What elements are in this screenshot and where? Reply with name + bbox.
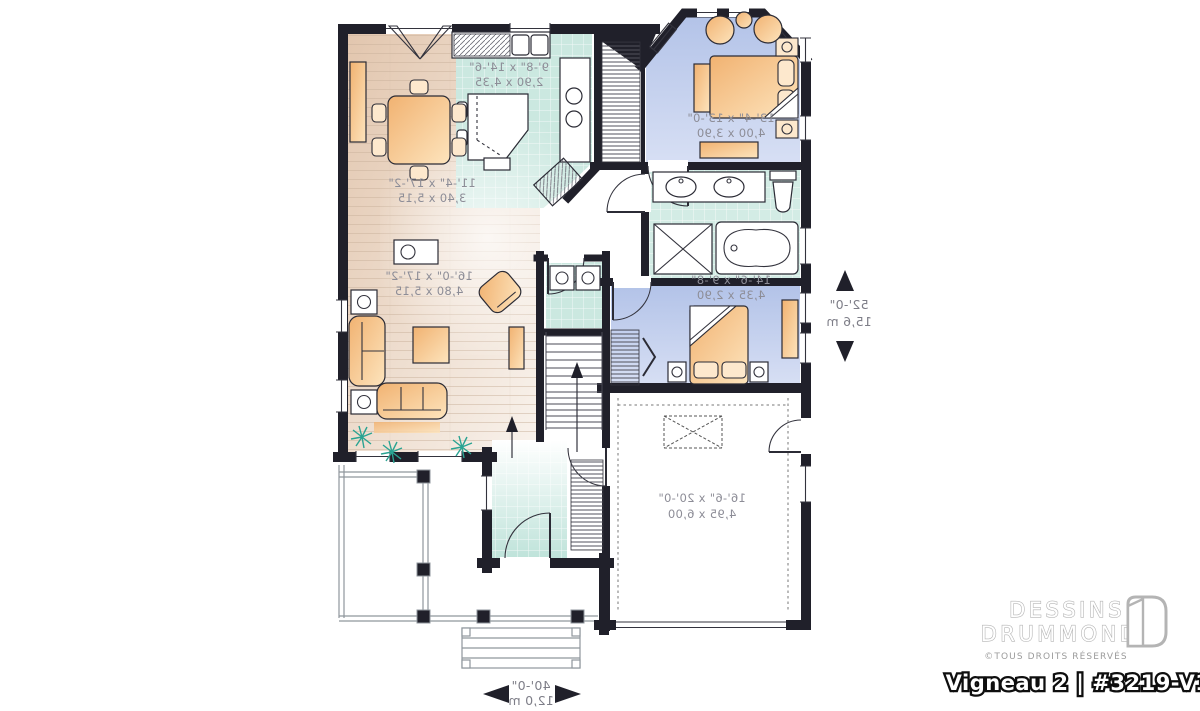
plan-model-number: Vigneau 2 | #3219-V1 [946, 671, 1200, 696]
pillow [778, 60, 794, 86]
window-garage [800, 466, 811, 502]
bedroom2-size-metric: 4,35 x 2,90 [697, 288, 766, 302]
depth-metric: 15,6 m [826, 314, 872, 329]
garage-service-door [769, 420, 801, 452]
rug [374, 422, 440, 433]
window-living-bottom-2 [418, 451, 462, 462]
dryer [576, 266, 600, 290]
bed [690, 306, 748, 384]
width-dimension: 40'-0" 12,0 m [483, 678, 581, 708]
width-metric: 12,0 m [508, 693, 554, 708]
garage [618, 398, 788, 612]
master-bed [710, 56, 798, 118]
living-size-imperial: 16'-0" x 17'-2" [385, 269, 473, 283]
kitchen-counter-right [560, 58, 590, 162]
coffee-table [413, 327, 449, 363]
end-table [351, 290, 377, 314]
dining-size-metric: 3,40 x 5,15 [398, 191, 467, 205]
shower [654, 224, 712, 274]
width-imperial: 40'-0" [511, 678, 550, 693]
front-steps [462, 628, 580, 668]
foyer-closet [571, 460, 603, 550]
kitchen-size-metric: 2,90 x 4,35 [475, 75, 544, 89]
brand-logo: DESSINS DRUMMOND ©TOUS DROITS RÉSERVÉS V… [946, 597, 1200, 696]
window-left-2 [336, 380, 347, 412]
garage-door-opening [616, 619, 786, 631]
nightstand [750, 362, 768, 382]
brand-copyright: ©TOUS DROITS RÉSERVÉS [984, 650, 1128, 662]
arrow-right-icon [555, 685, 581, 703]
brand-line1: DESSINS [1009, 598, 1125, 622]
depth-dimension: 52'-0" 15,6 m [826, 270, 872, 362]
round-table [736, 12, 752, 28]
chest [694, 64, 710, 112]
buffet [350, 62, 366, 142]
arrow-down-icon [836, 341, 854, 362]
dining-size-imperial: 11'-4" x 17'-2" [388, 176, 476, 190]
dishwasher [454, 34, 510, 56]
arrow-up-icon [836, 270, 854, 291]
bedroom2-size-imperial: 14'-6" x 9'-8" [691, 273, 771, 287]
attic-access [664, 416, 722, 448]
window-foyer [481, 476, 492, 510]
window-left-1 [336, 300, 347, 332]
bathtub [716, 222, 798, 274]
garage-size-metric: 4,95 x 6,00 [668, 507, 737, 521]
master-closet [602, 42, 640, 162]
nightstand [776, 120, 798, 138]
garage-size-imperial: 16'-6" x 20'-0" [658, 491, 746, 505]
window-bedroom2-2 [800, 333, 811, 363]
round-chair [706, 16, 734, 44]
foyer-tile-floor [492, 440, 567, 558]
arrow-left-icon [483, 685, 509, 703]
floor-plan: 11'-4" x 17'-2" 3,40 x 5,15 9'-8" x 14'-… [0, 0, 1200, 711]
window-bathroom [800, 228, 811, 264]
pillow [722, 362, 746, 378]
door-logo-icon [1128, 597, 1166, 646]
vanity-double-sink [653, 172, 765, 202]
window-bedroom2-1 [800, 293, 811, 323]
master-size-imperial: 13'-4" x 13'-0" [687, 111, 775, 125]
nightstand [776, 38, 798, 56]
depth-imperial: 52'-0" [829, 297, 868, 312]
loveseat [377, 383, 447, 419]
nightstand [668, 362, 686, 382]
brand-line2: DRUMMOND [981, 622, 1140, 646]
floor-plan-page: 11'-4" x 17'-2" 3,40 x 5,15 9'-8" x 14'-… [0, 0, 1200, 711]
master-size-metric: 4,00 x 3,90 [697, 126, 766, 140]
kitchen-size-imperial: 9'-8" x 14'-6" [469, 60, 549, 74]
tv-unit [509, 327, 524, 369]
window-master-2 [800, 116, 811, 140]
dresser [782, 300, 798, 358]
washer [550, 266, 574, 290]
living-size-metric: 4,80 x 5,15 [395, 284, 464, 298]
end-table [351, 390, 377, 414]
stair-direction-arrow [571, 362, 583, 452]
dining-table [388, 96, 450, 164]
pillow [694, 362, 718, 378]
console-table [394, 240, 438, 264]
dresser [700, 142, 758, 158]
window-master-1 [800, 38, 811, 62]
round-chair [754, 15, 782, 43]
